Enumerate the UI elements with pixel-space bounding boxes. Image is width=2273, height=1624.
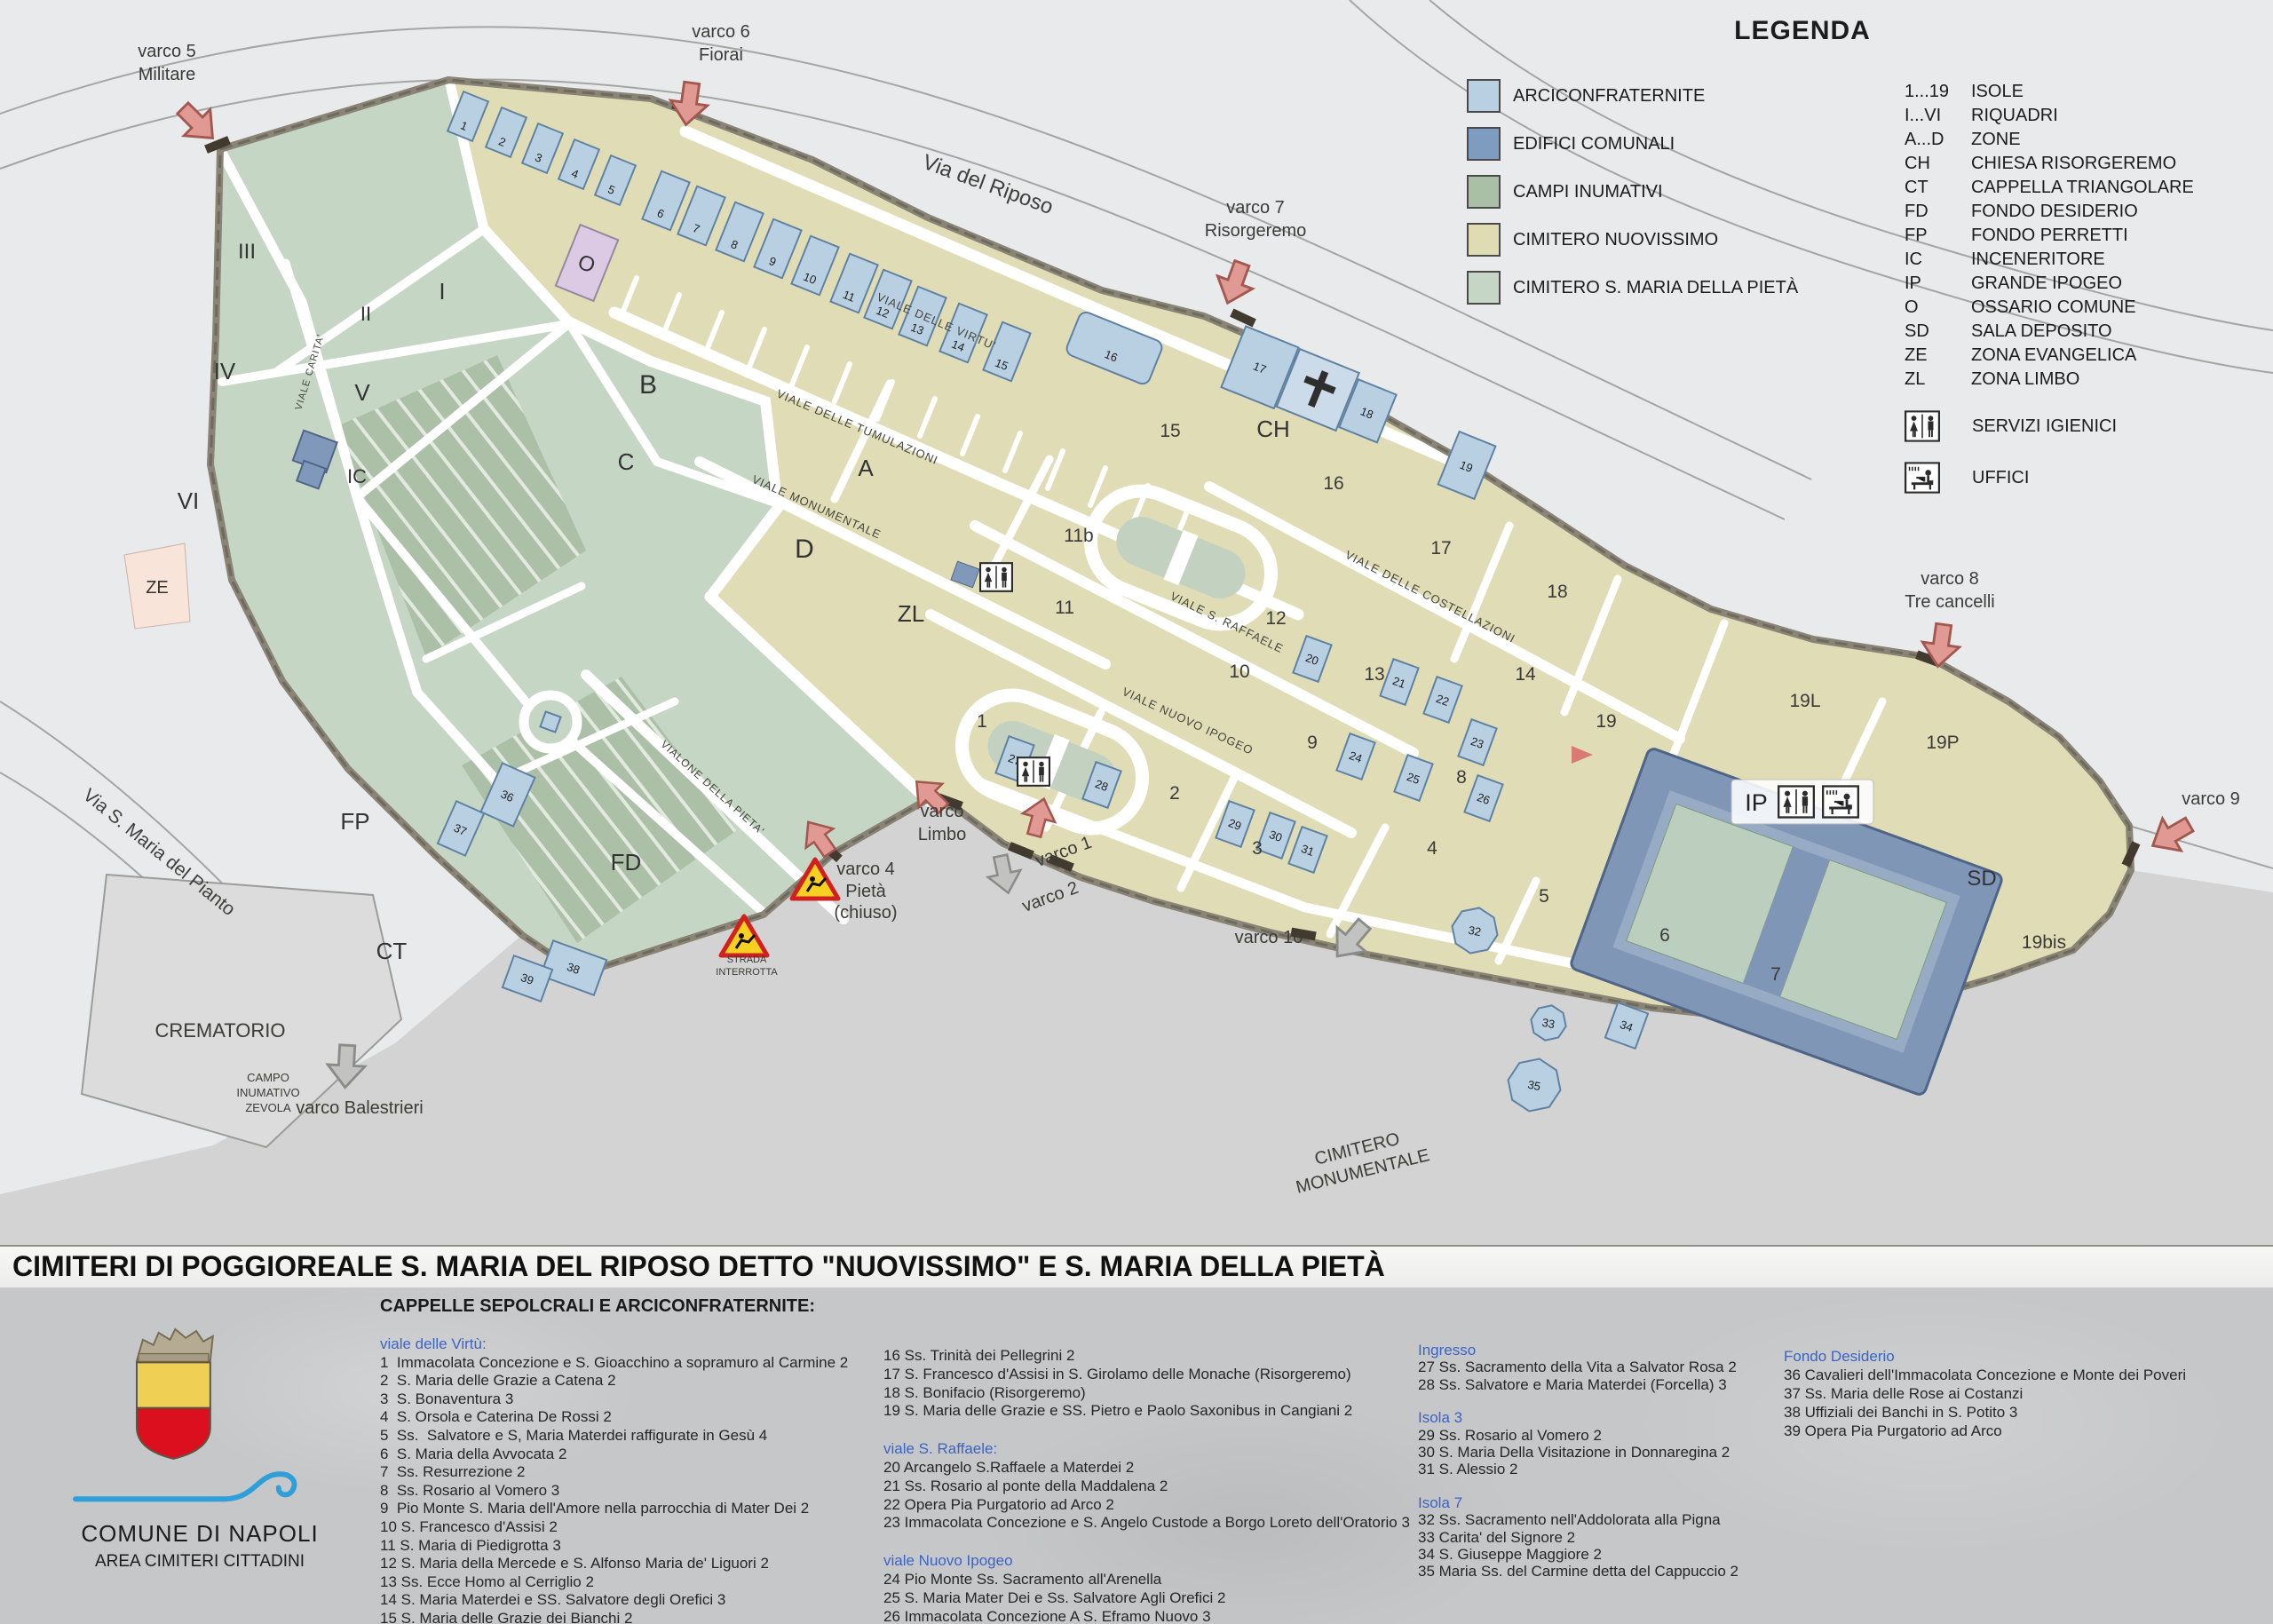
zone-A: A — [858, 455, 874, 481]
legend-code-label: FONDO PERRETTI — [1971, 226, 2128, 246]
isola-9: 9 — [1307, 733, 1318, 753]
varco4-label2: Pietà — [845, 882, 886, 901]
list-item: 14 S. Maria Materdei e SS. Salvatore deg… — [380, 1591, 848, 1610]
list-item: 3 S. Bonaventura 3 — [380, 1390, 848, 1409]
legend-code: ZE — [1905, 345, 1971, 366]
crematorio-label: CREMATORIO — [154, 1019, 285, 1042]
building-number: 33 — [1540, 1016, 1556, 1031]
legend-label: CIMITERO NUOVISSIMO — [1513, 230, 1718, 250]
list-item: 23 Immacolata Concezione e S. Angelo Cus… — [883, 1514, 1410, 1533]
legend-code-row: CHCHIESA RISORGEREMO — [1905, 152, 2176, 176]
legend-code-row: ZLZONA LIMBO — [1905, 368, 2079, 392]
isola-6: 6 — [1659, 925, 1670, 946]
legend-code-row: OOSSARIO COMUNE — [1905, 296, 2136, 320]
varco6-label2: Fiorai — [699, 45, 743, 65]
isola-14: 14 — [1515, 664, 1536, 685]
list-item: 4 S. Orsola e Caterina De Rossi 2 — [380, 1408, 848, 1427]
riquadro-I: I — [439, 278, 445, 305]
swatch-cimitero-nuovissimo — [1467, 223, 1501, 257]
legend-label: CAMPI INUMATIVI — [1513, 182, 1663, 202]
isola-16: 16 — [1323, 473, 1343, 494]
varco5-label2: Militare — [139, 65, 195, 84]
list-item: 26 Immacolata Concezione A S. Eframo Nuo… — [883, 1608, 1410, 1624]
isola-11b: 11b — [1064, 526, 1093, 546]
legend-code-label: OSSARIO COMUNE — [1971, 297, 2136, 318]
legend-code: 1...19 — [1905, 82, 1971, 102]
legend-code: I...VI — [1905, 106, 1971, 126]
legend-code: FP — [1905, 226, 1971, 246]
legend-label: ARCICONFRATERNITE — [1513, 86, 1705, 107]
legend-service-row: UFFICI — [1905, 462, 2029, 494]
legend-code: O — [1905, 297, 1971, 318]
riquadro-V: V — [354, 379, 370, 406]
varco-limbo-label: varco — [921, 802, 964, 821]
zevola-label3: ZEVOLA — [245, 1101, 291, 1114]
title-bar: CIMITERI DI POGGIOREALE S. MARIA DEL RIP… — [0, 1245, 2273, 1289]
list-item: 7 Ss. Resurrezione 2 — [380, 1463, 848, 1482]
list-item: 9 Pio Monte S. Maria dell'Amore nella pa… — [380, 1500, 848, 1518]
list-item: 18 S. Bonifacio (Risorgeremo) — [883, 1384, 1410, 1403]
wc-icon — [1018, 757, 1049, 786]
isola-4: 4 — [1427, 838, 1437, 859]
zone-label-IP: IP — [1745, 789, 1768, 816]
legend-code: ZL — [1905, 369, 1971, 390]
isola-17: 17 — [1430, 538, 1451, 558]
list-item: 27 Ss. Sacramento della Vita a Salvator … — [1418, 1359, 1738, 1375]
legend-code-label: FONDO DESIDERIO — [1971, 202, 2138, 222]
legend-code: IC — [1905, 250, 1971, 270]
legend-code-row: A...DZONE — [1905, 128, 2021, 152]
wc-icon — [1778, 787, 1814, 818]
legend-code: FD — [1905, 202, 1971, 222]
strada-interrotta-label2: INTERROTTA — [716, 967, 778, 978]
list-item: 10 S. Francesco d'Assisi 2 — [380, 1518, 848, 1537]
list-item: 28 Ss. Salvatore e Maria Materdei (Force… — [1418, 1376, 1738, 1393]
legend-label: CIMITERO S. MARIA DELLA PIETÀ — [1513, 278, 1798, 298]
isola-15: 15 — [1160, 421, 1180, 441]
building-number: 32 — [1467, 923, 1482, 939]
legend-code-label: ZONE — [1971, 130, 2021, 150]
list-item: 35 Maria Ss. del Carmine detta del Cappu… — [1418, 1563, 1738, 1580]
legend-code-label: SALA DEPOSITO — [1971, 321, 2112, 342]
legend-code-label: ZONA EVANGELICA — [1971, 345, 2136, 366]
legend-service-row: SERVIZI IGIENICI — [1905, 410, 2117, 442]
zone-CT: CT — [376, 938, 408, 964]
list-column-3: Ingresso 27 Ss. Sacramento della Vita a … — [1418, 1342, 1738, 1580]
strada-interrotta-label: STRADA — [727, 955, 767, 965]
varco4-label: varco 4 — [836, 860, 895, 879]
legend-code-row: FPFONDO PERRETTI — [1905, 224, 2128, 248]
list-item: 1 Immacolata Concezione e S. Gioacchino … — [380, 1354, 848, 1373]
group-header: viale delle Virtù: — [380, 1335, 848, 1354]
varco9-label: varco 9 — [2182, 789, 2240, 809]
logo-dept: AREA CIMITERI CITTADINI — [49, 1552, 351, 1572]
legend-code-label: GRANDE IPOGEO — [1971, 273, 2122, 294]
isola-11: 11 — [1055, 598, 1074, 618]
legend-code: CH — [1905, 154, 1971, 174]
roundabout — [524, 695, 577, 749]
isola-19P: 19P — [1926, 733, 1959, 753]
group-header: viale Nuovo Ipogeo — [883, 1552, 1410, 1571]
isola-19: 19 — [1596, 711, 1616, 732]
list-item: 13 Ss. Ecce Homo al Cerriglio 2 — [380, 1573, 848, 1592]
legend-code-row: CTCAPPELLA TRIANGOLARE — [1905, 176, 2194, 200]
list-item: 33 Carita' del Signore 2 — [1418, 1529, 1738, 1546]
swatch-campi-inumativi — [1467, 175, 1501, 209]
legend-code: SD — [1905, 321, 1971, 342]
varco8-label2: Tre cancelli — [1905, 592, 1995, 612]
riquadro-VI: VI — [178, 487, 200, 514]
list-item: 39 Opera Pia Purgatorio ad Arco — [1784, 1422, 2186, 1440]
isola-12: 12 — [1265, 608, 1286, 629]
legend-service-label: SERVIZI IGIENICI — [1972, 416, 2117, 437]
office-icon — [1905, 462, 1940, 494]
zone-FP: FP — [340, 808, 369, 835]
swatch-arciconfraternite — [1467, 79, 1501, 113]
list-item: 31 S. Alessio 2 — [1418, 1461, 1738, 1477]
isola-1: 1 — [977, 711, 987, 732]
legend-code-label: INCENERITORE — [1971, 250, 2105, 270]
list-item: 37 Ss. Maria delle Rose ai Costanzi — [1784, 1384, 2186, 1403]
swatch-cimitero-pieta — [1467, 271, 1501, 305]
legend-swatch-row: ARCICONFRATERNITE — [1467, 78, 1705, 114]
varco-limbo-label2: Limbo — [918, 825, 966, 844]
legend-code-label: ZONA LIMBO — [1971, 369, 2079, 390]
legend-label: EDIFICI COMUNALI — [1513, 134, 1675, 154]
list-column-4: Fondo Desiderio 36 Cavalieri dell'Immaco… — [1784, 1347, 2186, 1440]
wave-icon — [75, 1474, 294, 1499]
list-item: 6 S. Maria della Avvocata 2 — [380, 1446, 848, 1464]
group-header: Fondo Desiderio — [1784, 1347, 2186, 1366]
office-icon — [1823, 787, 1858, 818]
riquadro-II: II — [360, 303, 371, 325]
legend-code-label: CAPPELLA TRIANGOLARE — [1971, 178, 2194, 198]
zone-ZE: ZE — [146, 578, 169, 598]
legend-swatch-row: CIMITERO NUOVISSIMO — [1467, 222, 1718, 257]
list-item: 21 Ss. Rosario al ponte della Maddalena … — [883, 1477, 1410, 1496]
legend-swatch-row: CIMITERO S. MARIA DELLA PIETÀ — [1467, 270, 1798, 305]
group-header: Ingresso — [1418, 1342, 1738, 1359]
list-item: 30 S. Maria Della Visitazione in Donnare… — [1418, 1444, 1738, 1461]
legend-service-label: UFFICI — [1972, 468, 2029, 488]
group-header: viale S. Raffaele: — [883, 1440, 1410, 1459]
shield-icon — [137, 1362, 210, 1458]
riquadro-III: III — [238, 240, 256, 264]
list-item: 12 S. Maria della Mercede e S. Alfonso M… — [380, 1555, 848, 1573]
list-item: 19 S. Maria delle Grazie e SS. Pietro e … — [883, 1402, 1410, 1421]
list-column-1: viale delle Virtù: 1 Immacolata Concezio… — [380, 1335, 848, 1624]
building-number: 35 — [1526, 1078, 1541, 1093]
legend-code-label: ISOLE — [1971, 82, 2024, 102]
isola-19L: 19L — [1789, 691, 1820, 711]
varco6-label: varco 6 — [692, 22, 750, 42]
list-item: 11 S. Maria di Piedigrotta 3 — [380, 1537, 848, 1556]
wc-icon — [1905, 410, 1940, 442]
isola-8: 8 — [1456, 767, 1467, 788]
zone-IC: IC — [347, 465, 367, 487]
zone-FD: FD — [611, 849, 642, 875]
list-item: 5 Ss. Salvatore e S, Maria Materdei raff… — [380, 1427, 848, 1446]
zone-ZL: ZL — [898, 600, 924, 627]
list-item: 15 S. Maria delle Grazie dei Bianchi 2 — [380, 1610, 848, 1624]
list-item: 34 S. Giuseppe Maggiore 2 — [1418, 1546, 1738, 1563]
list-item: 20 Arcangelo S.Raffaele a Materdei 2 — [883, 1459, 1410, 1477]
legend-code-label: CHIESA RISORGEREMO — [1971, 154, 2176, 174]
varco-balestrieri-label: varco Balestrieri — [296, 1098, 423, 1118]
isola-7: 7 — [1770, 964, 1781, 985]
isola-19bis: 19bis — [2022, 932, 2066, 953]
riquadro-IV: IV — [214, 358, 236, 384]
legend-code: CT — [1905, 178, 1971, 198]
isola-5: 5 — [1539, 886, 1549, 907]
list-item: 16 Ss. Trinità dei Pellegrini 2 — [883, 1347, 1410, 1366]
swatch-edifici-comunali — [1467, 127, 1501, 161]
isola-2: 2 — [1169, 783, 1180, 804]
wc-icon — [980, 563, 1012, 591]
comune-di-napoli-logo — [67, 1327, 333, 1516]
zone-C: C — [618, 448, 635, 475]
legend-code-row: 1...19ISOLE — [1905, 80, 2024, 104]
varco10-label: varco 10 — [1235, 928, 1303, 947]
varco7-label: varco 7 — [1226, 198, 1285, 218]
legend-code-row: SDSALA DEPOSITO — [1905, 320, 2112, 344]
zone-SD: SD — [1967, 867, 1996, 891]
varco5-label: varco 5 — [138, 42, 196, 61]
legend-code-label: RIQUADRI — [1971, 106, 2058, 126]
list-item: 17 S. Francesco d'Assisi in S. Girolamo … — [883, 1366, 1410, 1384]
zone-B: B — [639, 370, 657, 400]
group-header: Isola 3 — [1418, 1409, 1738, 1426]
varco8-label: varco 8 — [1921, 569, 1979, 589]
logo-name: COMUNE DI NAPOLI — [49, 1520, 351, 1548]
legend-title: LEGENDA — [1687, 16, 1918, 46]
isola-13: 13 — [1364, 664, 1384, 685]
zone-CH: CH — [1256, 416, 1290, 442]
group-header: Isola 7 — [1418, 1494, 1738, 1511]
legend-code-row: IPGRANDE IPOGEO — [1905, 272, 2122, 296]
legend-swatch-row: CAMPI INUMATIVI — [1467, 174, 1663, 210]
zevola-label: CAMPO — [247, 1071, 289, 1084]
list-item: 32 Ss. Sacramento nell'Addolorata alla P… — [1418, 1511, 1738, 1528]
list-item: 36 Cavalieri dell'Immacolata Concezione … — [1784, 1366, 2186, 1384]
legend-code-row: ZEZONA EVANGELICA — [1905, 344, 2136, 368]
legend-code-row: ICINCENERITORE — [1905, 248, 2105, 272]
varco7-label2: Risorgeremo — [1205, 221, 1306, 241]
footer-subtitle: CAPPELLE SEPOLCRALI E ARCICONFRATERNITE: — [380, 1296, 815, 1317]
legend-code: A...D — [1905, 130, 1971, 150]
list-column-2: 16 Ss. Trinità dei Pellegrini 2 17 S. Fr… — [883, 1347, 1410, 1624]
legend-code: IP — [1905, 273, 1971, 294]
page-title: CIMITERI DI POGGIOREALE S. MARIA DEL RIP… — [0, 1247, 2273, 1286]
isola-10: 10 — [1229, 661, 1249, 682]
list-item: 24 Pio Monte Ss. Sacramento all'Arenella — [883, 1571, 1410, 1589]
isola-18: 18 — [1547, 582, 1567, 602]
legend-code-row: FDFONDO DESIDERIO — [1905, 200, 2138, 224]
list-item: 8 Ss. Rosario al Vomero 3 — [380, 1482, 848, 1501]
crown-icon — [137, 1329, 213, 1361]
list-item: 25 S. Maria Mater Dei e Ss. Salvatore Ag… — [883, 1589, 1410, 1608]
zevola-label2: INUMATIVO — [236, 1086, 299, 1099]
varco4-label3: (chiuso) — [834, 903, 897, 923]
cemetery-map-page: 1 2 3 4 5 6 7 8 9 10 11 12 13 14 15 16 1… — [0, 0, 2273, 1624]
ipogeo-label-box: IP — [1731, 780, 1873, 824]
zone-D: D — [795, 535, 814, 564]
legend-code-row: I...VIRIQUADRI — [1905, 104, 2058, 128]
list-item: 29 Ss. Rosario al Vomero 2 — [1418, 1427, 1738, 1444]
isola-3: 3 — [1252, 838, 1263, 859]
list-item: 2 S. Maria delle Grazie a Catena 2 — [380, 1372, 848, 1390]
list-item: 22 Opera Pia Purgatorio ad Arco 2 — [883, 1496, 1410, 1515]
legend-swatch-row: EDIFICI COMUNALI — [1467, 126, 1675, 162]
list-item: 38 Uffiziali dei Banchi in S. Potito 3 — [1784, 1403, 2186, 1422]
